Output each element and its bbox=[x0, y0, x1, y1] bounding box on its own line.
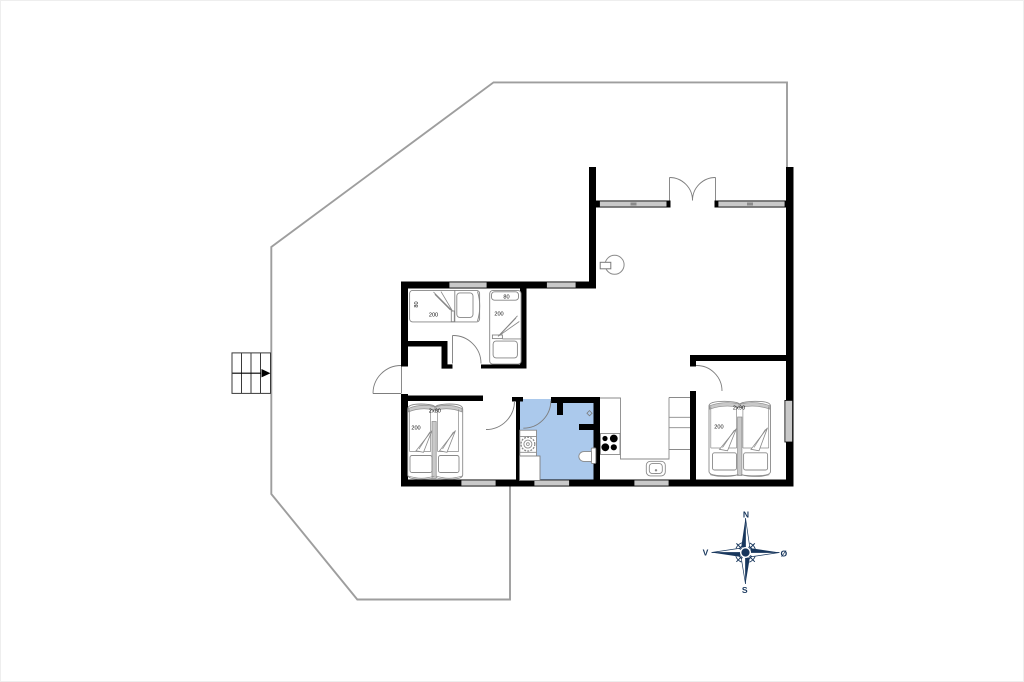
svg-text:V: V bbox=[703, 547, 709, 557]
svg-text:N: N bbox=[743, 509, 749, 519]
svg-text:80: 80 bbox=[503, 295, 509, 301]
svg-text:80: 80 bbox=[414, 301, 420, 307]
svg-text:200: 200 bbox=[714, 424, 723, 430]
svg-text:200: 200 bbox=[429, 313, 438, 319]
svg-text:200: 200 bbox=[494, 312, 503, 318]
svg-text:2x80: 2x80 bbox=[429, 408, 441, 414]
svg-text:2x90: 2x90 bbox=[733, 405, 745, 411]
svg-text:200: 200 bbox=[411, 426, 420, 432]
svg-text:Ø: Ø bbox=[780, 549, 787, 559]
svg-text:S: S bbox=[742, 585, 748, 595]
